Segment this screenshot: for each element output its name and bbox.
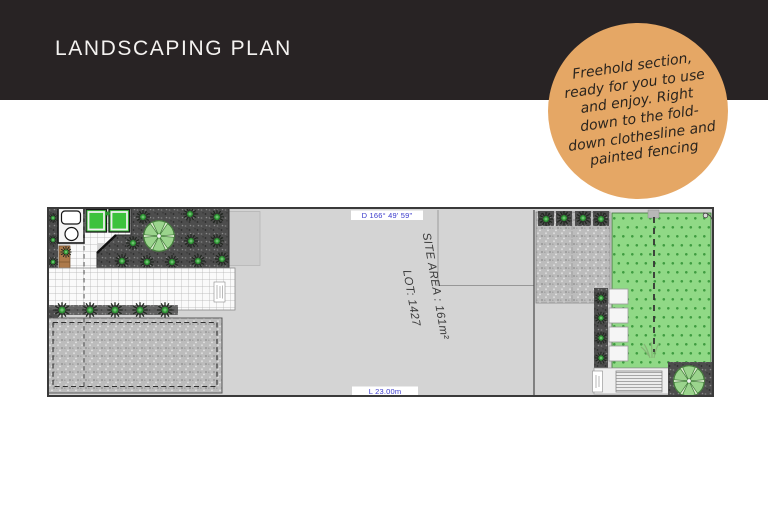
left-garden xyxy=(48,207,235,393)
paving-note-tag xyxy=(214,282,225,302)
paved-terrace xyxy=(48,268,235,310)
note-badge-text: Freehold section, ready for you to use a… xyxy=(557,48,719,173)
clothesline-post xyxy=(648,210,659,218)
tree-symbol xyxy=(674,366,705,397)
site-plan-svg: D 166° 49' 59" L 23.00m SITE AREA : 161m… xyxy=(46,206,716,399)
landscaping-plan-drawing: D 166° 49' 59" L 23.00m SITE AREA : 161m… xyxy=(46,206,716,399)
bearing-label: D 166° 49' 59" xyxy=(362,211,413,220)
note-badge: Freehold section, ready for you to use a… xyxy=(548,23,728,199)
corner-tree xyxy=(668,362,713,397)
concrete-pad xyxy=(229,212,260,266)
utility-area xyxy=(58,208,84,243)
length-label: L 23.00m xyxy=(369,387,402,396)
deck-note-tag xyxy=(593,371,603,392)
deck-steps xyxy=(593,368,671,394)
tree-symbol xyxy=(144,221,175,252)
front-yard xyxy=(48,318,222,393)
stepping-tiles xyxy=(594,288,628,368)
page-title: LANDSCAPING PLAN xyxy=(55,37,292,61)
